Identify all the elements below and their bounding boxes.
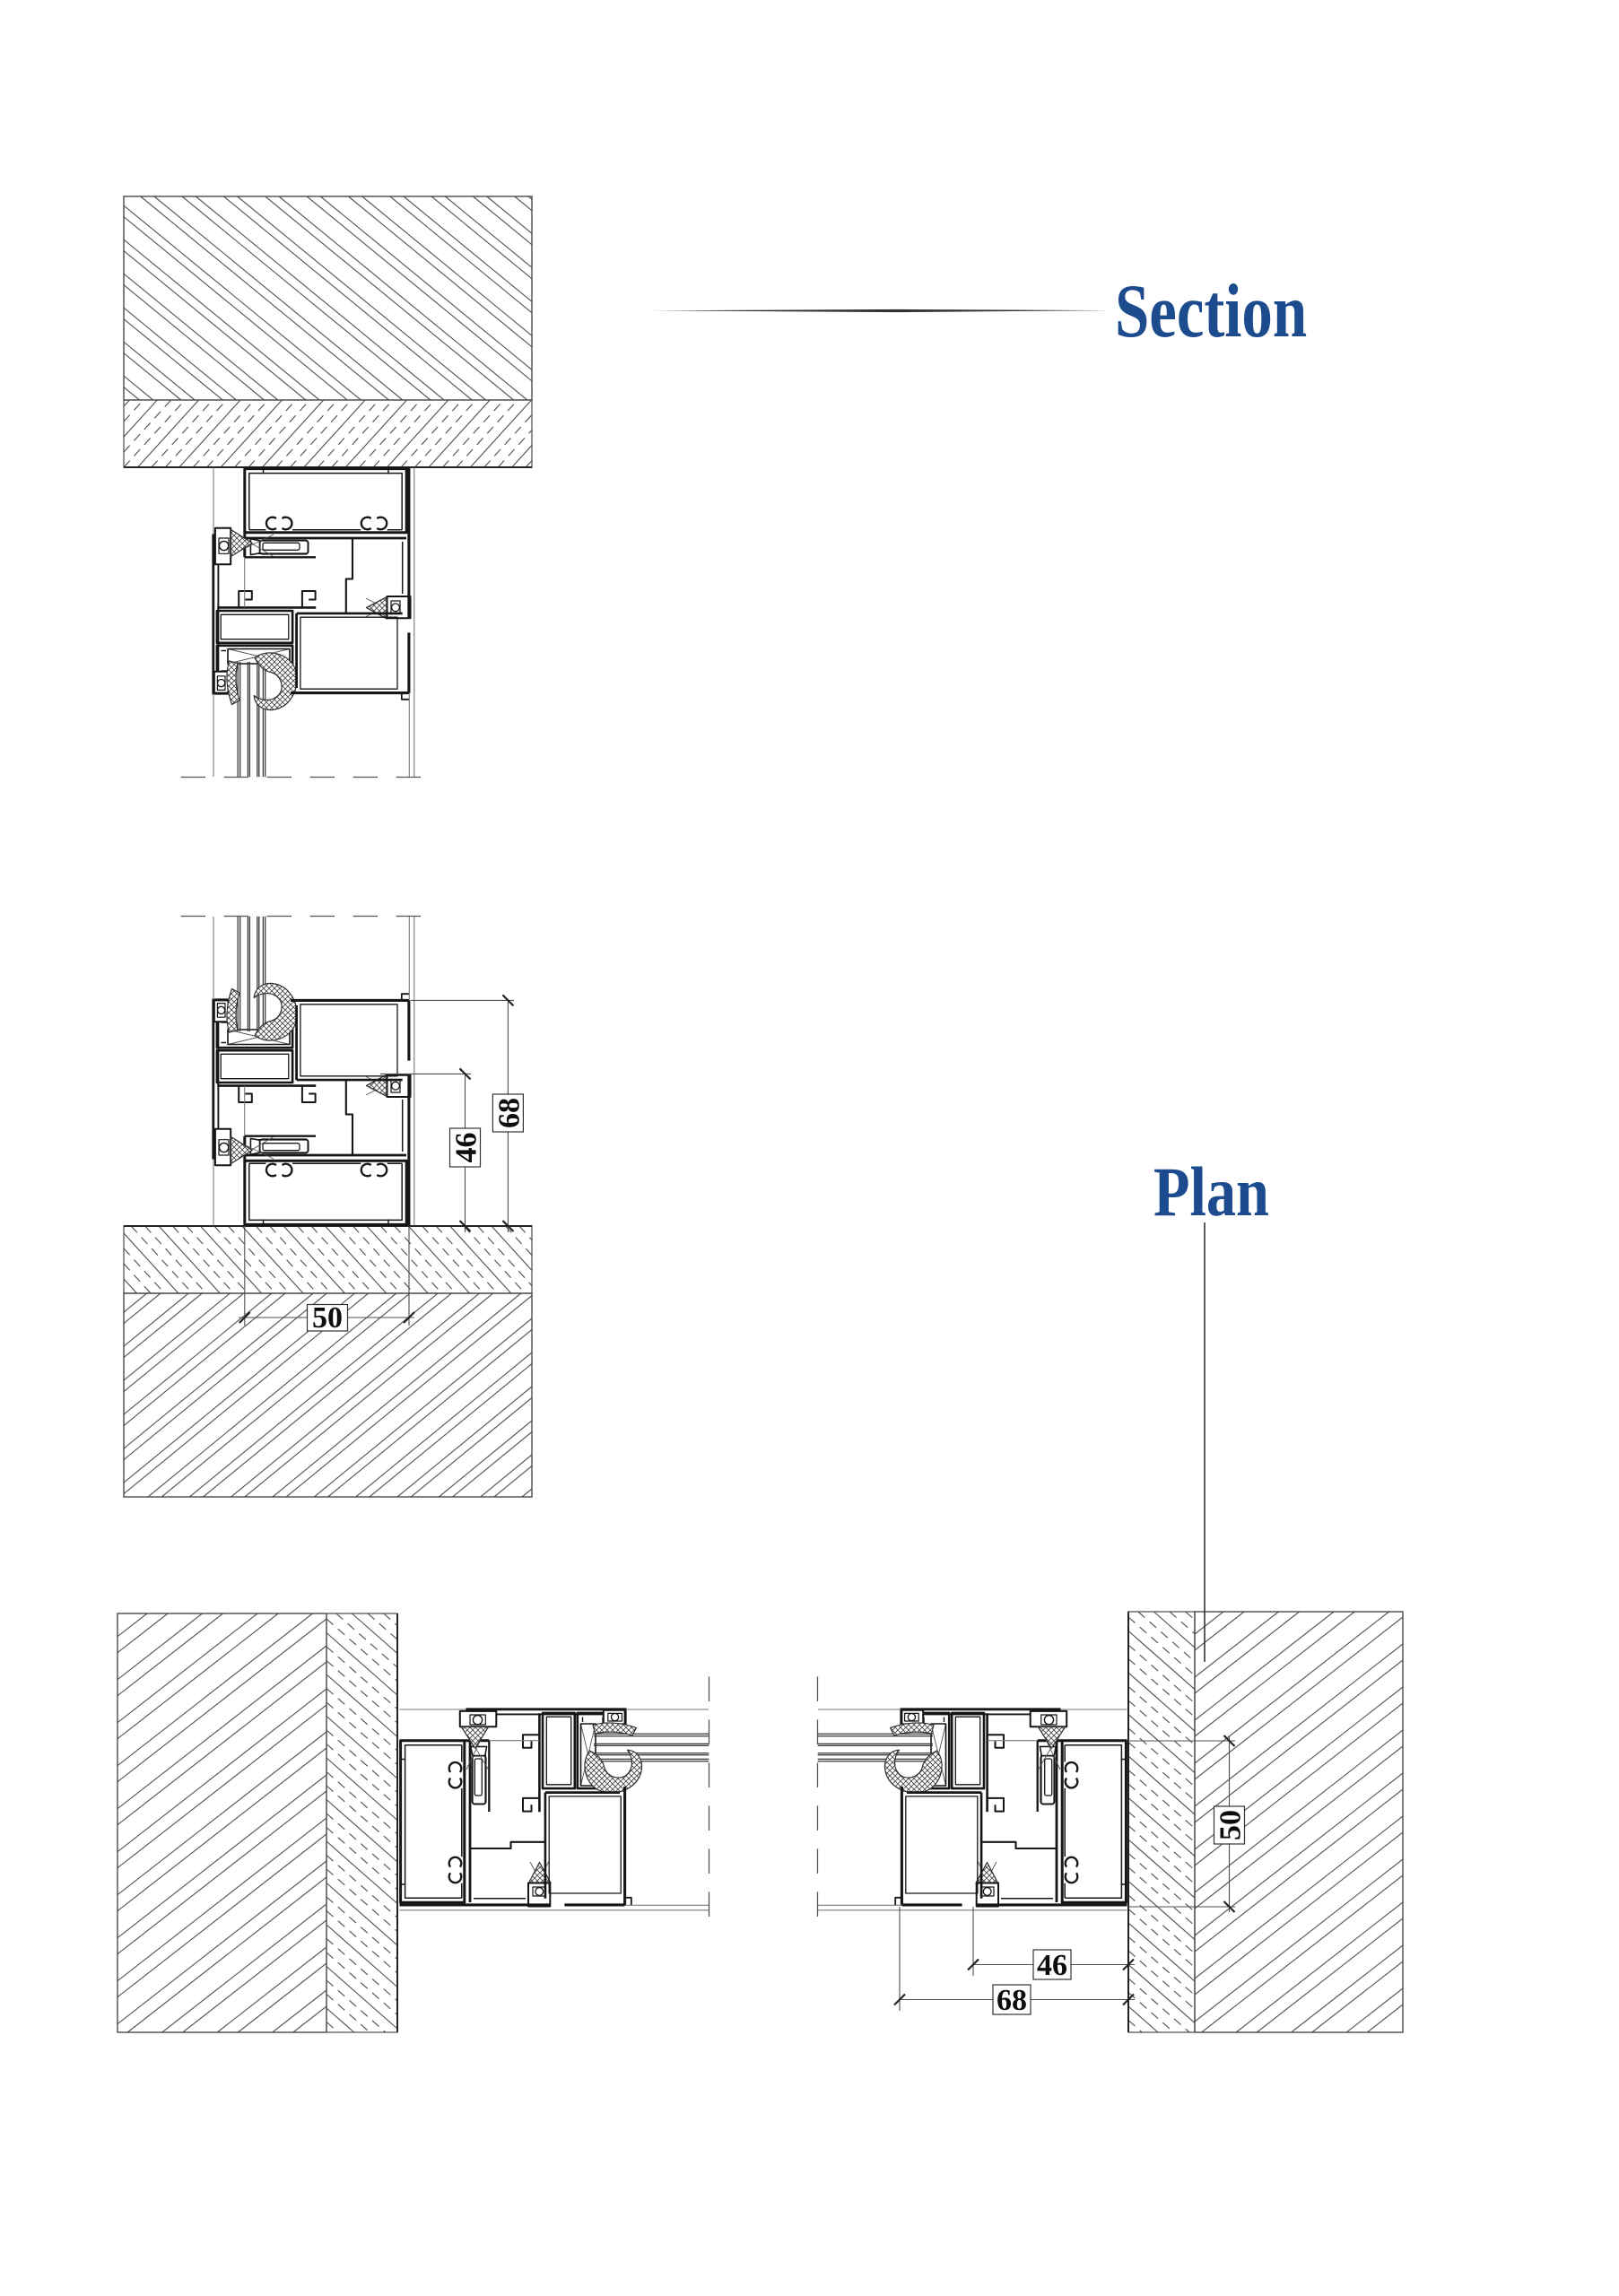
svg-text:46: 46	[450, 1133, 483, 1163]
svg-text:Section: Section	[1115, 268, 1307, 353]
svg-text:Plan: Plan	[1153, 1153, 1269, 1231]
svg-text:50: 50	[312, 1301, 343, 1335]
svg-text:50: 50	[1214, 1810, 1248, 1840]
svg-text:68: 68	[492, 1098, 526, 1128]
svg-text:46: 46	[1037, 1949, 1067, 1982]
svg-text:68: 68	[997, 1984, 1027, 2017]
